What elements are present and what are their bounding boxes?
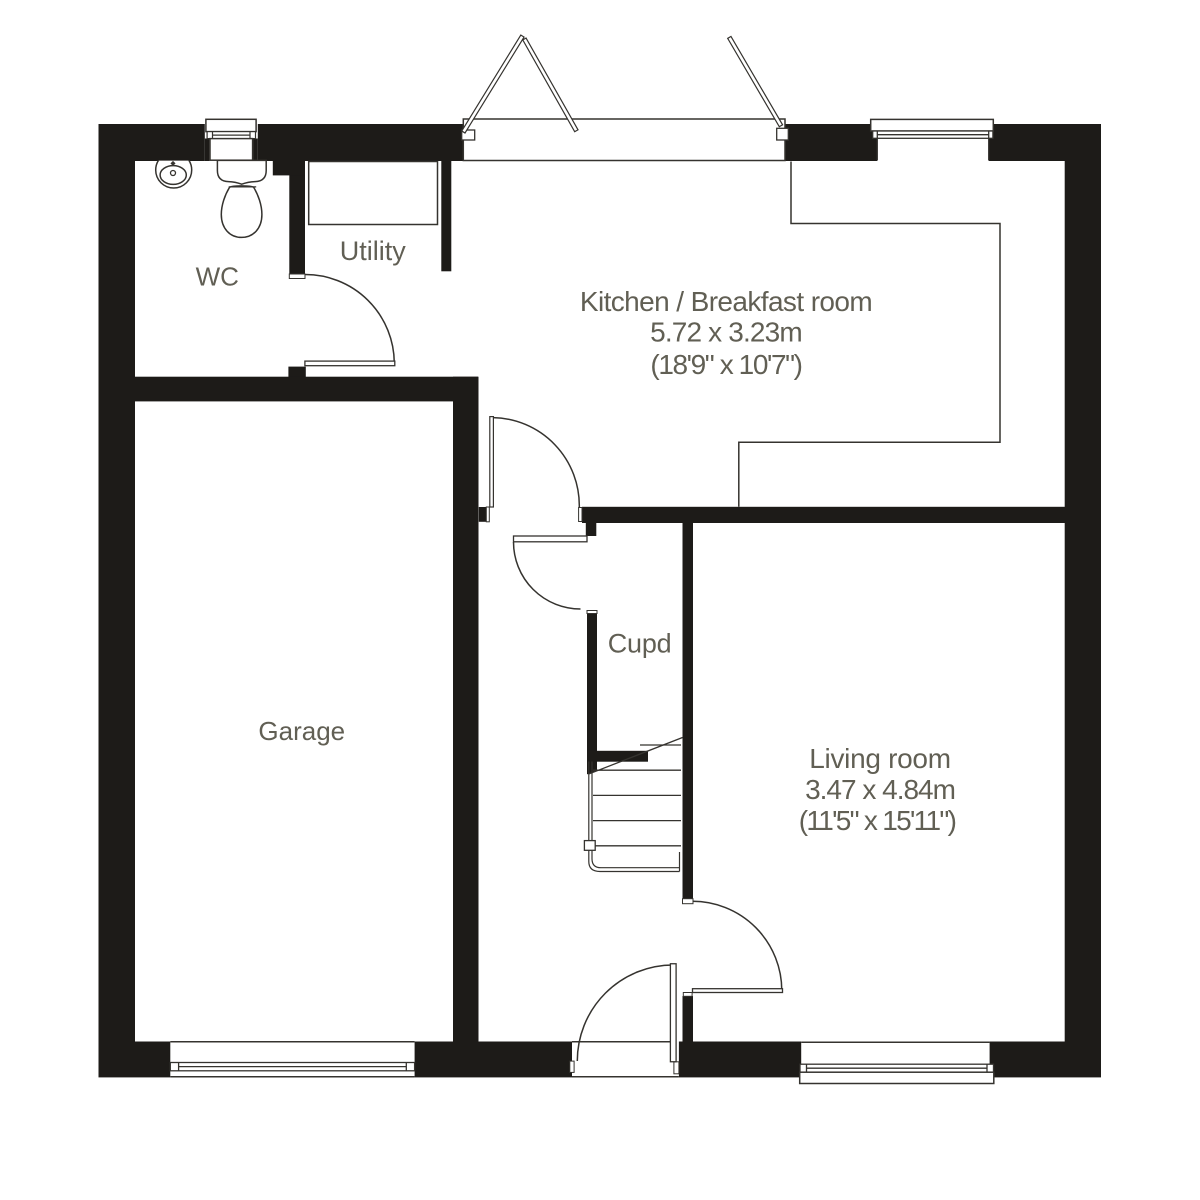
svg-text:(11'5" x 15'11"): (11'5" x 15'11")	[799, 805, 956, 836]
svg-text:Utility: Utility	[340, 236, 406, 266]
svg-text:Living room: Living room	[809, 743, 950, 774]
svg-text:3.47 x 4.84m: 3.47 x 4.84m	[805, 774, 955, 805]
svg-text:Kitchen / Breakfast room: Kitchen / Breakfast room	[580, 286, 872, 317]
svg-text:(18'9" x 10'7"): (18'9" x 10'7")	[650, 349, 801, 380]
svg-text:Cupd: Cupd	[608, 629, 672, 659]
svg-text:Garage: Garage	[258, 716, 345, 746]
svg-text:WC: WC	[196, 262, 239, 292]
svg-text:5.72 x 3.23m: 5.72 x 3.23m	[650, 317, 802, 348]
